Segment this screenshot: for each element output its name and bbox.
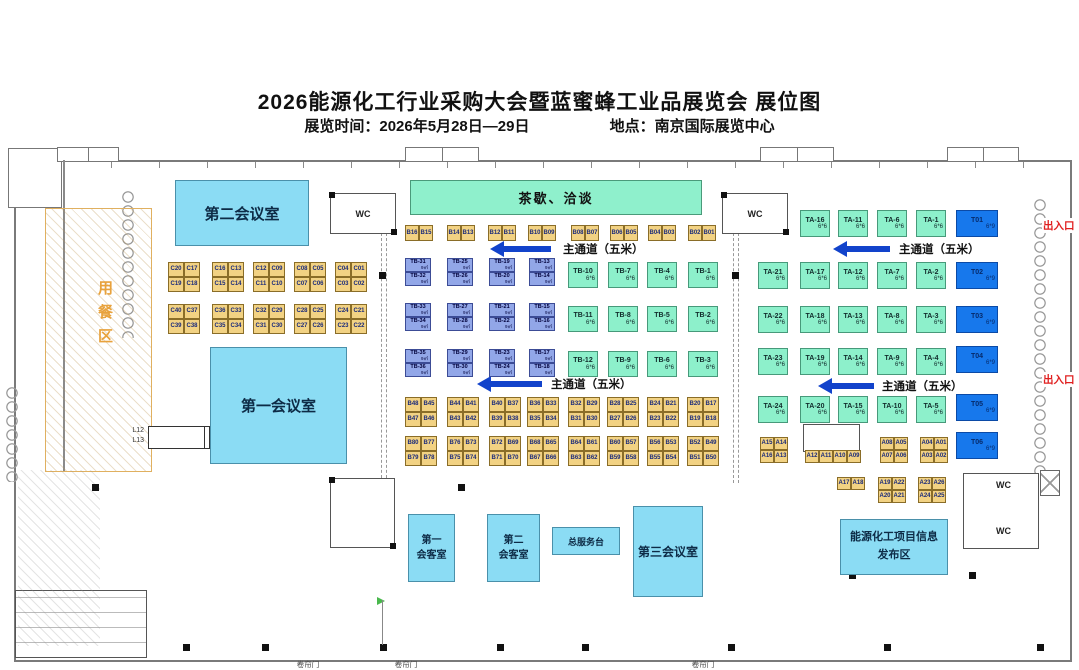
booth-B73: B73 xyxy=(463,436,479,451)
booth-group-B56: B56B53B55B54 xyxy=(647,436,679,466)
booth-C35: C35 xyxy=(212,319,228,334)
booth-A22: A22 xyxy=(892,477,906,490)
booth-TA-5: TA-56*6 xyxy=(916,396,946,423)
booth-group-B12: B12B11 xyxy=(488,225,516,241)
booth-group-C36: C36C33C35C34 xyxy=(212,304,244,334)
booth-B34: B34 xyxy=(543,412,559,427)
booth-group-TA-3: TA-36*6 xyxy=(916,306,946,333)
booth-B49: B49 xyxy=(703,436,719,451)
booth-B51: B51 xyxy=(687,451,703,466)
booth-group-C16: C16C13C15C14 xyxy=(212,262,244,292)
booth-group-B48: B48B45B47B46 xyxy=(405,397,437,427)
page-subtitle: 展览时间：2026年5月28日—29日 地点：南京国际展览中心 xyxy=(0,115,1079,136)
booth-T03: T036*9 xyxy=(956,306,998,333)
booth-TB-23: TB-239㎡ xyxy=(489,349,515,363)
booth-group-TB-10: TB-106*6 xyxy=(568,262,598,288)
booth-A12: A12 xyxy=(805,450,819,463)
booth-group-TA-17: TA-176*6 xyxy=(800,262,830,289)
booth-B60: B60 xyxy=(607,436,623,451)
booth-TB-11: TB-116*6 xyxy=(568,306,598,332)
booth-B52: B52 xyxy=(687,436,703,451)
exhibition-location: 地点：南京国际展览中心 xyxy=(610,118,775,135)
booth-C27: C27 xyxy=(294,319,310,334)
booth-B50: B50 xyxy=(703,451,719,466)
booth-group-TB-3: TB-36*6 xyxy=(688,351,718,377)
booth-TA-6: TA-66*6 xyxy=(877,210,907,237)
booth-B06: B06 xyxy=(610,225,624,241)
top-door-4 xyxy=(947,147,1019,162)
shutter-door-label: 卷帘门 xyxy=(383,659,429,670)
booth-C31: C31 xyxy=(253,319,269,334)
booth-C19: C19 xyxy=(168,277,184,292)
l-booth-labels: L12 L13 xyxy=(126,426,144,446)
expansion-joint-left xyxy=(381,233,387,483)
booth-A18: A18 xyxy=(851,477,865,490)
booth-B29: B29 xyxy=(584,397,600,412)
booth-group-TB-33: TB-339㎡TB-349㎡ xyxy=(405,303,431,331)
booth-group-TB-29: TB-299㎡TB-309㎡ xyxy=(447,349,473,377)
booth-C37: C37 xyxy=(184,304,200,319)
booth-B68: B68 xyxy=(527,436,543,451)
booth-B19: B19 xyxy=(687,412,703,427)
booth-group-C04: C04C01C03C02 xyxy=(335,262,367,292)
booth-TB-22: TB-229㎡ xyxy=(489,317,515,331)
booth-group-B10: B10B09 xyxy=(528,225,556,241)
booth-group-TA-21: TA-216*6 xyxy=(758,262,788,289)
booth-group-TB-6: TB-66*6 xyxy=(647,351,677,377)
booth-C14: C14 xyxy=(228,277,244,292)
booth-A25: A25 xyxy=(932,490,946,503)
booth-group-A17: A17A18 xyxy=(837,477,865,490)
booth-TA-20: TA-206*6 xyxy=(800,396,830,423)
meeting-room-2-label: 第二会议室 xyxy=(204,203,279,224)
info-zone-line2: 发布区 xyxy=(878,547,911,565)
booth-C28: C28 xyxy=(294,304,310,319)
exhibition-time: 展览时间：2026年5月28日—29日 xyxy=(304,118,529,135)
booth-C05: C05 xyxy=(310,262,326,277)
booth-B65: B65 xyxy=(543,436,559,451)
booth-B41: B41 xyxy=(463,397,479,412)
booth-group-TA-5: TA-56*6 xyxy=(916,396,946,423)
booth-B79: B79 xyxy=(405,451,421,466)
booth-A05: A05 xyxy=(894,437,908,450)
booth-TB-10: TB-106*6 xyxy=(568,262,598,288)
booth-TA-1: TA-16*6 xyxy=(916,210,946,237)
booth-group-A08: A08A05A07A06 xyxy=(880,437,908,463)
booth-B09: B09 xyxy=(542,225,556,241)
booth-C15: C15 xyxy=(212,277,228,292)
booth-TA-14: TA-146*6 xyxy=(838,348,868,375)
wc-room-top-right: WC xyxy=(722,193,788,234)
booth-B11: B11 xyxy=(502,225,516,241)
booth-group-TA-1: TA-16*6 xyxy=(916,210,946,237)
booth-A04: A04 xyxy=(920,437,934,450)
booth-B22: B22 xyxy=(663,412,679,427)
booth-TB-2: TB-26*6 xyxy=(688,306,718,332)
booth-C16: C16 xyxy=(212,262,228,277)
booth-group-B72: B72B69B71B70 xyxy=(489,436,521,466)
booth-TA-23: TA-236*6 xyxy=(758,348,788,375)
booth-B70: B70 xyxy=(505,451,521,466)
booth-C26: C26 xyxy=(310,319,326,334)
booth-group-TB-25: TB-259㎡TB-269㎡ xyxy=(447,258,473,286)
booth-T02: T026*9 xyxy=(956,262,998,289)
booth-B72: B72 xyxy=(489,436,505,451)
booth-group-B68: B68B65B67B66 xyxy=(527,436,559,466)
booth-group-T06: T066*9 xyxy=(956,432,998,459)
meeting-room-3: 第三会议室 xyxy=(633,506,703,597)
booth-group-TB-21: TB-219㎡TB-229㎡ xyxy=(489,303,515,331)
booth-L12: L12 xyxy=(126,426,144,436)
booth-TA-4: TA-46*6 xyxy=(916,348,946,375)
reception-room-1: 第一 会客室 xyxy=(408,514,455,582)
booth-A20: A20 xyxy=(878,490,892,503)
booth-C18: C18 xyxy=(184,277,200,292)
booth-group-TB-11: TB-116*6 xyxy=(568,306,598,332)
booth-B47: B47 xyxy=(405,412,421,427)
booth-TA-13: TA-136*6 xyxy=(838,306,868,333)
booth-B40: B40 xyxy=(489,397,505,412)
booth-T05: T056*9 xyxy=(956,394,998,421)
aisle-arrow xyxy=(503,246,551,252)
meeting-room-1-label: 第一会议室 xyxy=(241,395,316,416)
booth-B01: B01 xyxy=(702,225,716,241)
booth-TA-7: TA-76*6 xyxy=(877,262,907,289)
pillar xyxy=(92,484,99,491)
booth-B15: B15 xyxy=(419,225,433,241)
booth-group-TB-7: TB-76*6 xyxy=(608,262,638,288)
booth-B42: B42 xyxy=(463,412,479,427)
wc-label: WC xyxy=(996,480,1011,490)
booth-group-B44: B44B41B43B42 xyxy=(447,397,479,427)
booth-group-B04: B04B03 xyxy=(648,225,676,241)
booth-B39: B39 xyxy=(489,412,505,427)
service-desk: 总服务台 xyxy=(552,527,620,555)
booth-TB-9: TB-96*6 xyxy=(608,351,638,377)
booth-B54: B54 xyxy=(663,451,679,466)
booth-B35: B35 xyxy=(527,412,543,427)
booth-B20: B20 xyxy=(687,397,703,412)
booth-group-B24: B24B21B23B22 xyxy=(647,397,679,427)
booth-B23: B23 xyxy=(647,412,663,427)
booth-B53: B53 xyxy=(663,436,679,451)
booth-T06: T066*9 xyxy=(956,432,998,459)
booth-group-TB-31: TB-319㎡TB-329㎡ xyxy=(405,258,431,286)
booth-group-TB-2: TB-26*6 xyxy=(688,306,718,332)
pillar xyxy=(1037,644,1044,651)
booth-B76: B76 xyxy=(447,436,463,451)
booth-TA-9: TA-96*6 xyxy=(877,348,907,375)
booth-TB-15: TB-159㎡ xyxy=(529,303,555,317)
booth-B45: B45 xyxy=(421,397,437,412)
booth-TB-29: TB-299㎡ xyxy=(447,349,473,363)
wc-label: WC xyxy=(356,209,371,219)
booth-group-TA-10: TA-106*6 xyxy=(877,396,907,423)
booth-group-T04: T046*9 xyxy=(956,346,998,373)
meeting-room-2: 第二会议室 xyxy=(175,180,309,246)
booth-C29: C29 xyxy=(269,304,285,319)
booth-group-TA-4: TA-46*6 xyxy=(916,348,946,375)
booth-B25: B25 xyxy=(623,397,639,412)
booth-group-TA-23: TA-236*6 xyxy=(758,348,788,375)
booth-group-B32: B32B29B31B30 xyxy=(568,397,600,427)
booth-TB-16: TB-169㎡ xyxy=(529,317,555,331)
booth-group-C20: C20C17C19C18 xyxy=(168,262,200,292)
booth-group-B76: B76B73B75B74 xyxy=(447,436,479,466)
elevator-box xyxy=(1040,470,1060,496)
reception-room-1-line2: 会客室 xyxy=(417,548,447,563)
booth-TB-31: TB-319㎡ xyxy=(405,258,431,272)
booth-group-TA-7: TA-76*6 xyxy=(877,262,907,289)
booth-A06: A06 xyxy=(894,450,908,463)
booth-B77: B77 xyxy=(421,436,437,451)
booth-group-TA-9: TA-96*6 xyxy=(877,348,907,375)
booth-group-TA-2: TA-26*6 xyxy=(916,262,946,289)
pillar xyxy=(262,644,269,651)
booth-B44: B44 xyxy=(447,397,463,412)
booth-group-TA-14: TA-146*6 xyxy=(838,348,868,375)
hatched-area-lower xyxy=(18,470,100,646)
info-release-zone: 能源化工项目信息 发布区 xyxy=(840,519,948,575)
booth-A21: A21 xyxy=(892,490,906,503)
booth-group-TB-8: TB-86*6 xyxy=(608,306,638,332)
booth-TA-11: TA-116*6 xyxy=(838,210,868,237)
booth-B08: B08 xyxy=(571,225,585,241)
booth-group-TB-4: TB-46*6 xyxy=(647,262,677,288)
booth-group-TA-24: TA-246*6 xyxy=(758,396,788,423)
exit-label-upper: 出入口 xyxy=(1042,218,1076,233)
booth-A09: A09 xyxy=(847,450,861,463)
booth-B07: B07 xyxy=(585,225,599,241)
booth-group-TA-16: TA-166*6 xyxy=(800,210,830,237)
booth-B17: B17 xyxy=(703,397,719,412)
booth-TA-3: TA-36*6 xyxy=(916,306,946,333)
room-bottom-center xyxy=(330,478,395,548)
booth-group-T03: T036*9 xyxy=(956,306,998,333)
booth-C34: C34 xyxy=(228,319,244,334)
booth-C36: C36 xyxy=(212,304,228,319)
booth-group-TB-17: TB-179㎡TB-189㎡ xyxy=(529,349,555,377)
booth-TB-1: TB-16*6 xyxy=(688,262,718,288)
booth-B48: B48 xyxy=(405,397,421,412)
wc-label: WC xyxy=(748,209,763,219)
booth-A14: A14 xyxy=(774,437,788,450)
booth-group-T01: T016*9 xyxy=(956,210,998,237)
booth-TA-17: TA-176*6 xyxy=(800,262,830,289)
tea-break-area: 茶歇、洽谈 xyxy=(410,180,702,215)
booth-B24: B24 xyxy=(647,397,663,412)
booth-B04: B04 xyxy=(648,225,662,241)
booth-C11: C11 xyxy=(253,277,269,292)
booth-group-B36: B36B33B35B34 xyxy=(527,397,559,427)
booth-B46: B46 xyxy=(421,412,437,427)
booth-group-T02: T026*9 xyxy=(956,262,998,289)
flag-stem xyxy=(382,600,383,645)
booth-C21: C21 xyxy=(351,304,367,319)
booth-group-TA-12: TA-126*6 xyxy=(838,262,868,289)
booth-TA-8: TA-86*6 xyxy=(877,306,907,333)
reception-room-2-line2: 会客室 xyxy=(499,548,529,563)
booth-group-TA-8: TA-86*6 xyxy=(877,306,907,333)
booth-group-TA-11: TA-116*6 xyxy=(838,210,868,237)
booth-group-B14: B14B13 xyxy=(447,225,475,241)
booth-TB-19: TB-199㎡ xyxy=(489,258,515,272)
top-door-3 xyxy=(760,147,834,162)
booth-TB-8: TB-86*6 xyxy=(608,306,638,332)
booth-group-TA-22: TA-226*6 xyxy=(758,306,788,333)
booth-group-A04: A04A01A03A02 xyxy=(920,437,948,463)
booth-C06: C06 xyxy=(310,277,326,292)
booth-TB-17: TB-179㎡ xyxy=(529,349,555,363)
booth-TB-18: TB-189㎡ xyxy=(529,363,555,377)
booth-TA-2: TA-26*6 xyxy=(916,262,946,289)
pillar xyxy=(732,272,739,279)
booth-TB-14: TB-149㎡ xyxy=(529,272,555,286)
booth-group-B16: B16B15 xyxy=(405,225,433,241)
aisle-label: 主通道（五米） xyxy=(551,376,632,392)
dining-area-label: 用餐区 xyxy=(94,280,115,352)
pillar xyxy=(969,572,976,579)
booth-B12: B12 xyxy=(488,225,502,241)
booth-B26: B26 xyxy=(623,412,639,427)
booth-TB-36: TB-369㎡ xyxy=(405,363,431,377)
booth-C01: C01 xyxy=(351,262,367,277)
booth-B33: B33 xyxy=(543,397,559,412)
booth-C03: C03 xyxy=(335,277,351,292)
booth-A24: A24 xyxy=(918,490,932,503)
booth-group-TA-18: TA-186*6 xyxy=(800,306,830,333)
booth-TB-27: TB-279㎡ xyxy=(447,303,473,317)
booth-group-TB-9: TB-96*6 xyxy=(608,351,638,377)
booth-C08: C08 xyxy=(294,262,310,277)
booth-B43: B43 xyxy=(447,412,463,427)
booth-group-B06: B06B05 xyxy=(610,225,638,241)
booth-group-TA-6: TA-66*6 xyxy=(877,210,907,237)
tea-break-label: 茶歇、洽谈 xyxy=(518,188,593,207)
pillar xyxy=(884,644,891,651)
booth-group-TA-13: TA-136*6 xyxy=(838,306,868,333)
booth-B13: B13 xyxy=(461,225,475,241)
booth-TA-24: TA-246*6 xyxy=(758,396,788,423)
pillar xyxy=(497,644,504,651)
booth-B71: B71 xyxy=(489,451,505,466)
exit-label-lower: 出入口 xyxy=(1042,372,1076,387)
booth-C07: C07 xyxy=(294,277,310,292)
booth-C17: C17 xyxy=(184,262,200,277)
booth-group-TB-35: TB-359㎡TB-369㎡ xyxy=(405,349,431,377)
booth-A16: A16 xyxy=(760,450,774,463)
booth-B18: B18 xyxy=(703,412,719,427)
booth-TB-3: TB-36*6 xyxy=(688,351,718,377)
booth-A13: A13 xyxy=(774,450,788,463)
booth-B21: B21 xyxy=(663,397,679,412)
aisle-label: 主通道（五米） xyxy=(882,378,963,394)
booth-C38: C38 xyxy=(184,319,200,334)
booth-B30: B30 xyxy=(584,412,600,427)
aisle-arrow xyxy=(831,383,874,389)
aisle-label: 主通道（五米） xyxy=(563,241,644,257)
booth-group-TB-13: TB-139㎡TB-149㎡ xyxy=(529,258,555,286)
booth-B57: B57 xyxy=(623,436,639,451)
booth-group-TB-23: TB-239㎡TB-249㎡ xyxy=(489,349,515,377)
reception-room-1-line1: 第一 xyxy=(422,533,442,548)
structure-box xyxy=(803,424,860,452)
booth-B10: B10 xyxy=(528,225,542,241)
booth-group-TB-12: TB-126*6 xyxy=(568,351,598,377)
booth-group-B28: B28B25B27B26 xyxy=(607,397,639,427)
booth-B62: B62 xyxy=(584,451,600,466)
booth-group-B08: B08B07 xyxy=(571,225,599,241)
booth-TB-28: TB-289㎡ xyxy=(447,317,473,331)
booth-group-C32: C32C29C31C30 xyxy=(253,304,285,334)
booth-B16: B16 xyxy=(405,225,419,241)
booth-C30: C30 xyxy=(269,319,285,334)
booth-group-B52: B52B49B51B50 xyxy=(687,436,719,466)
pillar xyxy=(380,644,387,651)
top-door-2 xyxy=(405,147,479,162)
booth-group-C28: C28C25C27C26 xyxy=(294,304,326,334)
booth-B36: B36 xyxy=(527,397,543,412)
booth-B56: B56 xyxy=(647,436,663,451)
booth-B67: B67 xyxy=(527,451,543,466)
pillar xyxy=(728,644,735,651)
booth-TA-18: TA-186*6 xyxy=(800,306,830,333)
booth-TA-16: TA-166*6 xyxy=(800,210,830,237)
booth-B75: B75 xyxy=(447,451,463,466)
booth-C23: C23 xyxy=(335,319,351,334)
booth-B37: B37 xyxy=(505,397,521,412)
booth-A19: A19 xyxy=(878,477,892,490)
booth-B58: B58 xyxy=(623,451,639,466)
booth-TA-10: TA-106*6 xyxy=(877,396,907,423)
page-title: 2026能源化工行业采购大会暨蓝蜜蜂工业品展览会 展位图 xyxy=(0,86,1079,116)
pillar xyxy=(458,484,465,491)
booth-TA-22: TA-226*6 xyxy=(758,306,788,333)
wc-label: WC xyxy=(996,526,1011,536)
booth-group-TB-5: TB-56*6 xyxy=(647,306,677,332)
booth-TA-15: TA-156*6 xyxy=(838,396,868,423)
booth-B31: B31 xyxy=(568,412,584,427)
booth-A23: A23 xyxy=(918,477,932,490)
booth-A11: A11 xyxy=(819,450,833,463)
booth-group-B64: B64B61B63B62 xyxy=(568,436,600,466)
booth-B02: B02 xyxy=(688,225,702,241)
booth-TB-6: TB-66*6 xyxy=(647,351,677,377)
booth-A08: A08 xyxy=(880,437,894,450)
booth-TB-24: TB-249㎡ xyxy=(489,363,515,377)
booth-B59: B59 xyxy=(607,451,623,466)
booth-B28: B28 xyxy=(607,397,623,412)
shutter-door-label: 卷帘门 xyxy=(285,659,331,670)
booth-B74: B74 xyxy=(463,451,479,466)
booth-C10: C10 xyxy=(269,277,285,292)
booth-TB-7: TB-76*6 xyxy=(608,262,638,288)
booth-C02: C02 xyxy=(351,277,367,292)
booth-B63: B63 xyxy=(568,451,584,466)
booth-C04: C04 xyxy=(335,262,351,277)
booth-TB-5: TB-56*6 xyxy=(647,306,677,332)
expansion-joint-right xyxy=(733,233,739,483)
booth-C09: C09 xyxy=(269,262,285,277)
booth-TB-34: TB-349㎡ xyxy=(405,317,431,331)
meeting-room-1: 第一会议室 xyxy=(210,347,347,464)
top-wall-ticks xyxy=(63,162,1068,168)
wc-room-top-left: WC xyxy=(330,193,396,234)
booth-TB-21: TB-219㎡ xyxy=(489,303,515,317)
pillar xyxy=(379,272,386,279)
booth-C22: C22 xyxy=(351,319,367,334)
booth-group-B60: B60B57B59B58 xyxy=(607,436,639,466)
